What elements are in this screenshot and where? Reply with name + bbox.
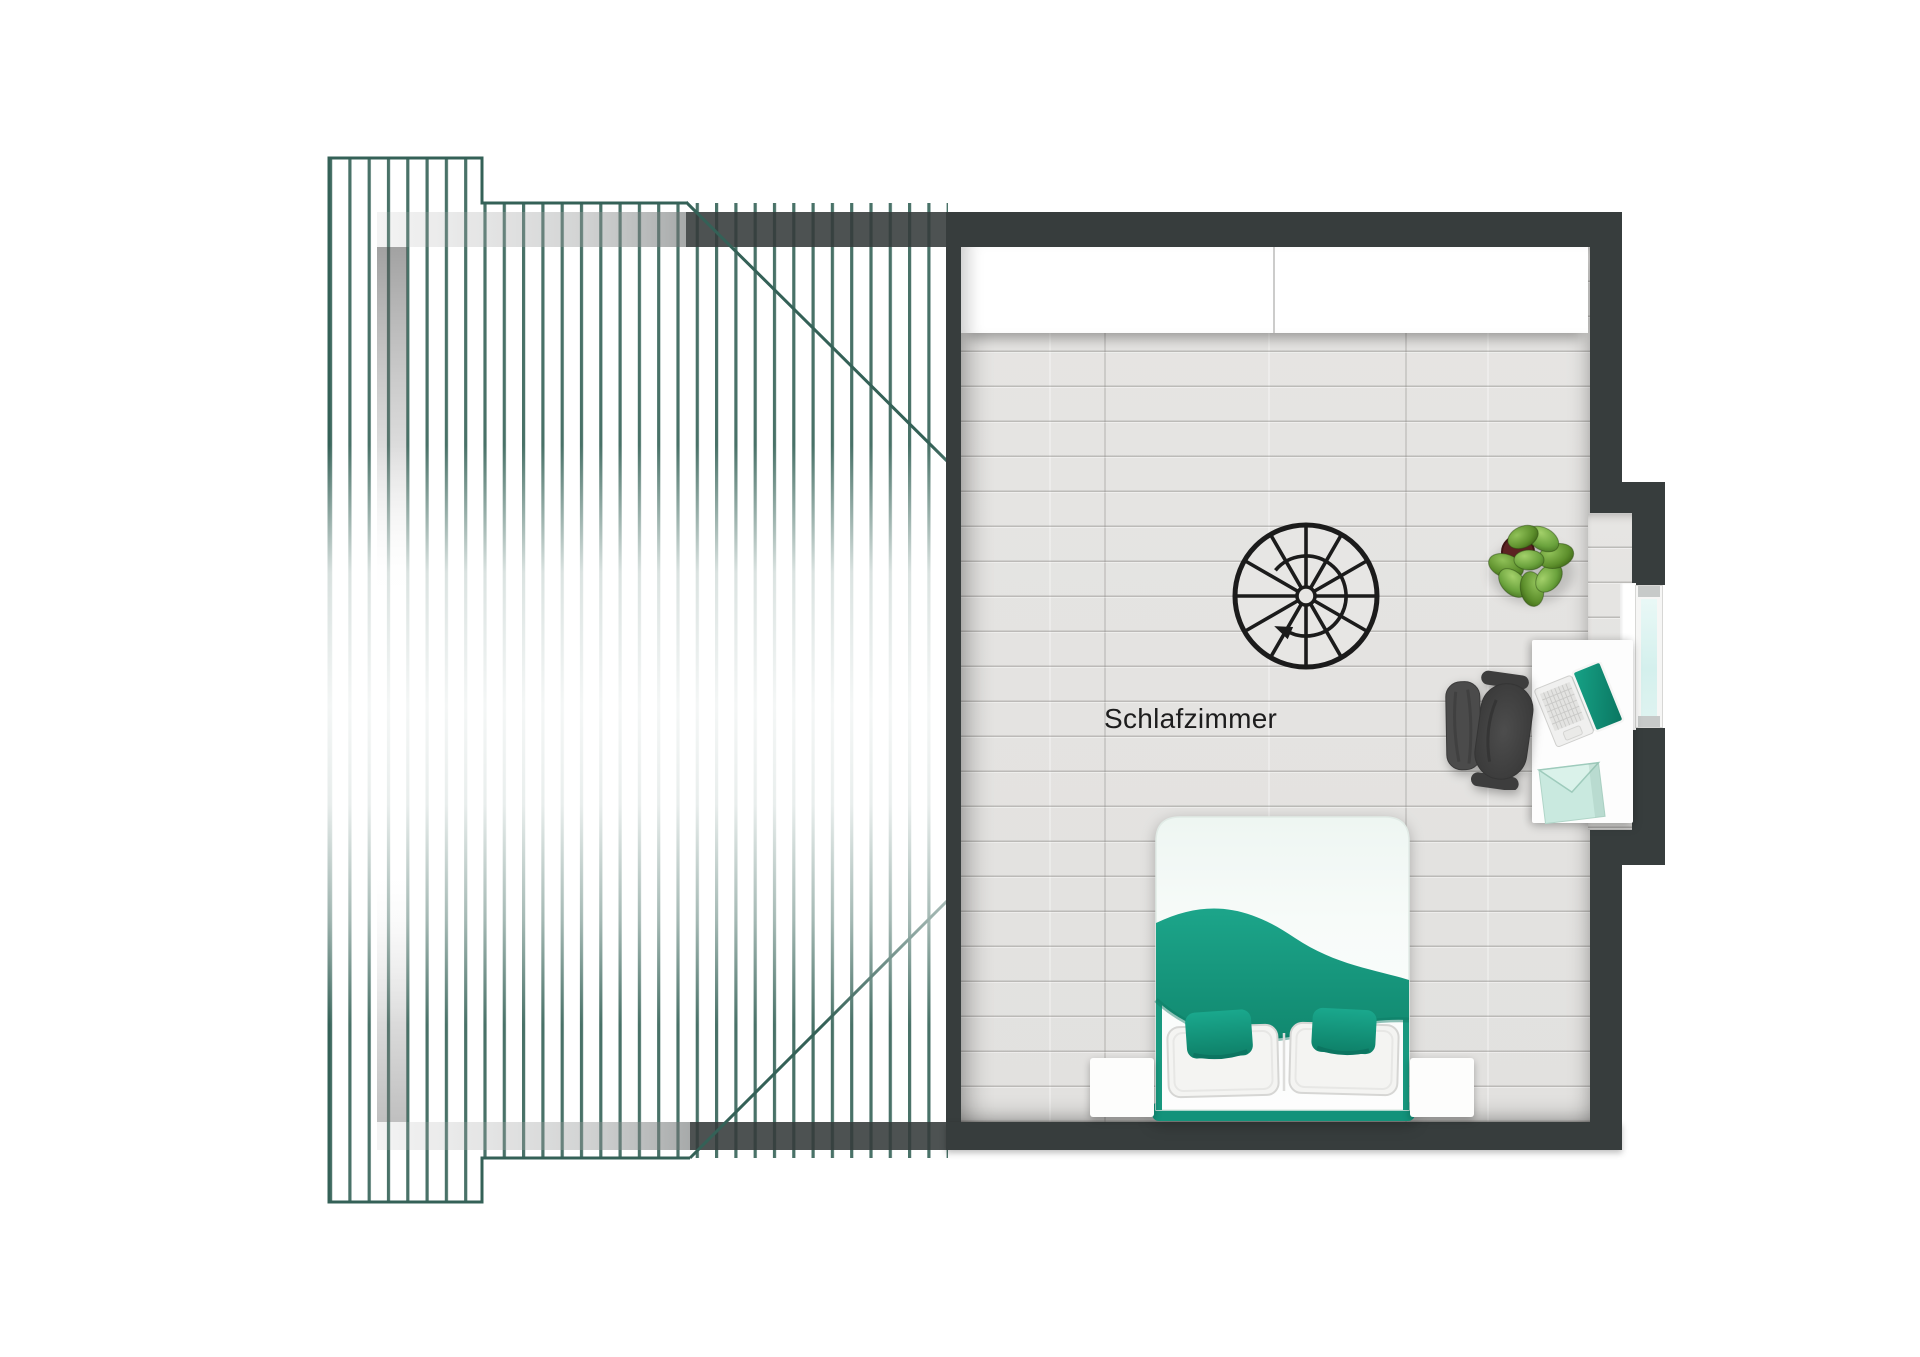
window [1635,585,1663,728]
bed-cushion-right [1311,1007,1377,1054]
window-frame-cap-bottom [1638,716,1660,727]
wall-left [946,212,961,1150]
potted-plant [1476,514,1586,618]
bay-wall-bottom [1590,830,1665,865]
roof-hatch-area [325,150,965,1215]
floor-plan: Schlafzimmer [0,0,1920,1357]
window-frame-cap-top [1638,586,1660,597]
nightstand-left [1090,1058,1154,1117]
wall-top [946,212,1622,247]
bay-wall-top [1590,482,1665,513]
bay-wall-right-upper [1632,513,1665,585]
office-chair [1440,670,1548,790]
wall-right-upper [1590,212,1622,482]
chair-seat [1471,680,1536,782]
nightstand-right [1410,1058,1474,1117]
wardrobe-door-divider [1273,247,1275,333]
spiral-staircase [1226,516,1386,676]
wall-right-lower [1590,865,1622,1150]
bay-wall-right-lower [1632,728,1665,830]
room-label: Schlafzimmer [1104,702,1277,736]
bed-cushion-left [1184,1009,1253,1059]
wardrobe [961,247,1588,333]
window-glass [1641,599,1657,716]
